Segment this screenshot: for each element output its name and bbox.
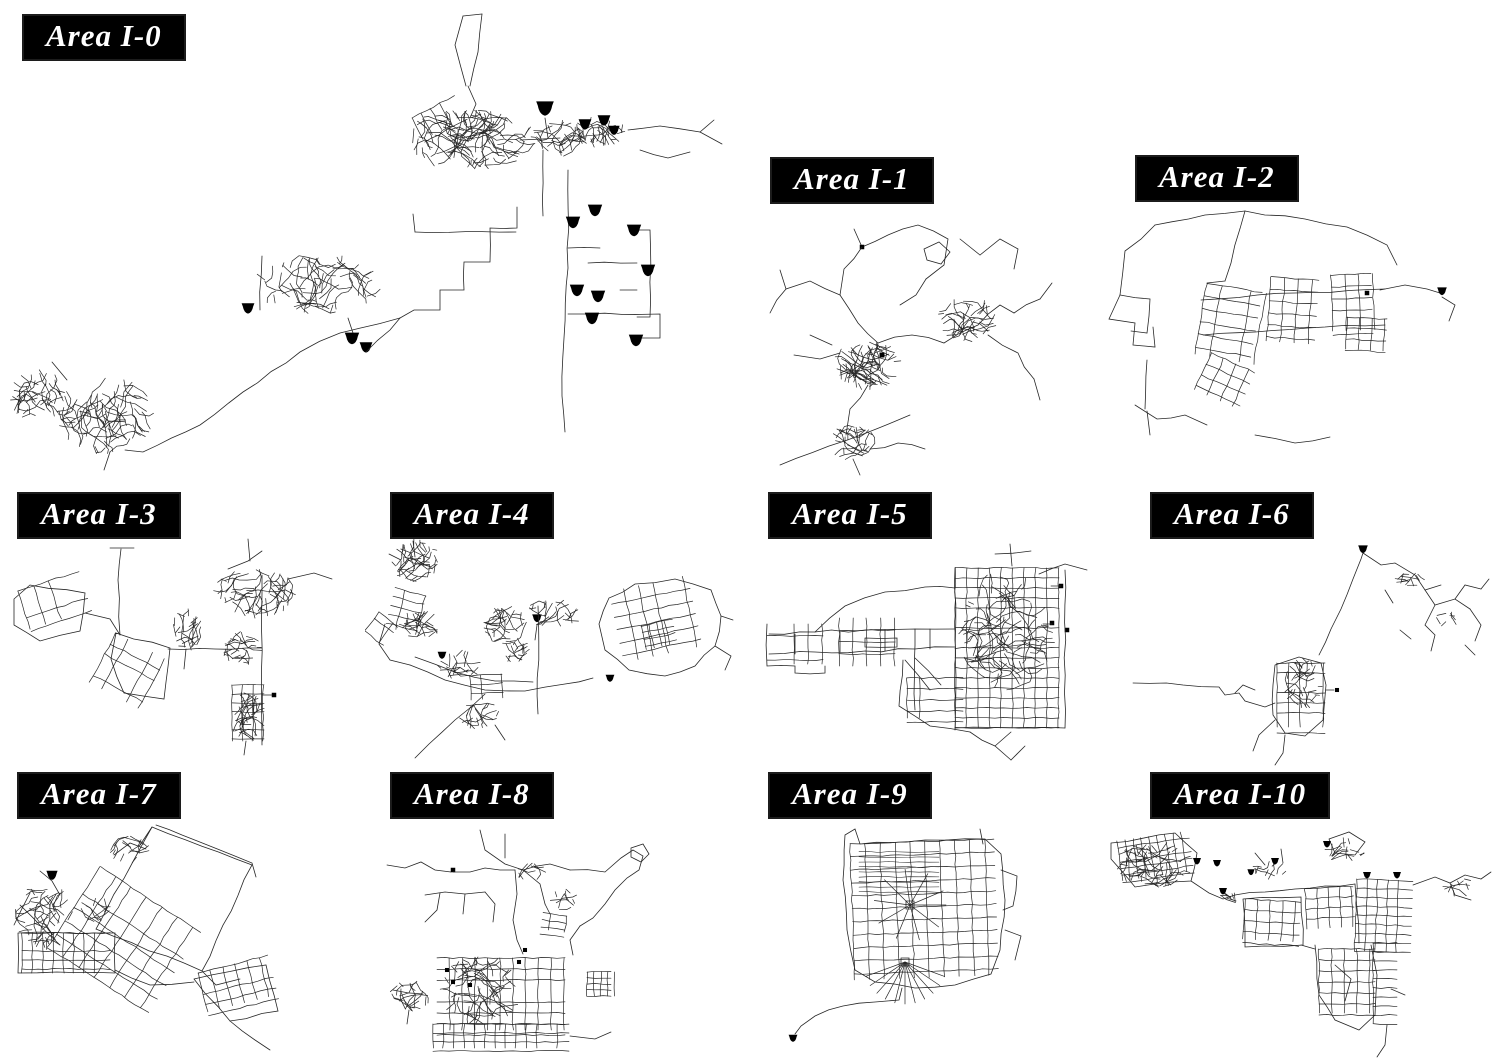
area-i-8-map [365, 810, 700, 1062]
area-i-6-map [1125, 535, 1497, 775]
area-i-7-label: Area I-7 [17, 772, 181, 819]
network-areas-figure: Area I-0 Area I-1 Area I-2 Area I-3 Area… [0, 0, 1497, 1062]
area-i-0-map [0, 0, 745, 490]
area-i-5-label: Area I-5 [768, 492, 932, 539]
area-i-3-map [0, 535, 350, 772]
area-i-8-label: Area I-8 [390, 772, 554, 819]
area-i-9-label: Area I-9 [768, 772, 932, 819]
area-i-10-label: Area I-10 [1150, 772, 1330, 819]
area-i-0-label: Area I-0 [22, 14, 186, 61]
area-i-2-label: Area I-2 [1135, 155, 1299, 202]
area-i-4-label: Area I-4 [390, 492, 554, 539]
area-i-1-label: Area I-1 [770, 157, 934, 204]
area-i-5-map [755, 530, 1095, 772]
area-i-10-map [1105, 815, 1497, 1062]
area-i-7-map [0, 815, 350, 1062]
area-i-9-map [755, 810, 1065, 1062]
area-i-6-label: Area I-6 [1150, 492, 1314, 539]
area-i-2-map [1095, 205, 1495, 465]
area-i-4-map [365, 530, 740, 777]
area-i-3-label: Area I-3 [17, 492, 181, 539]
area-i-1-map [750, 195, 1080, 485]
